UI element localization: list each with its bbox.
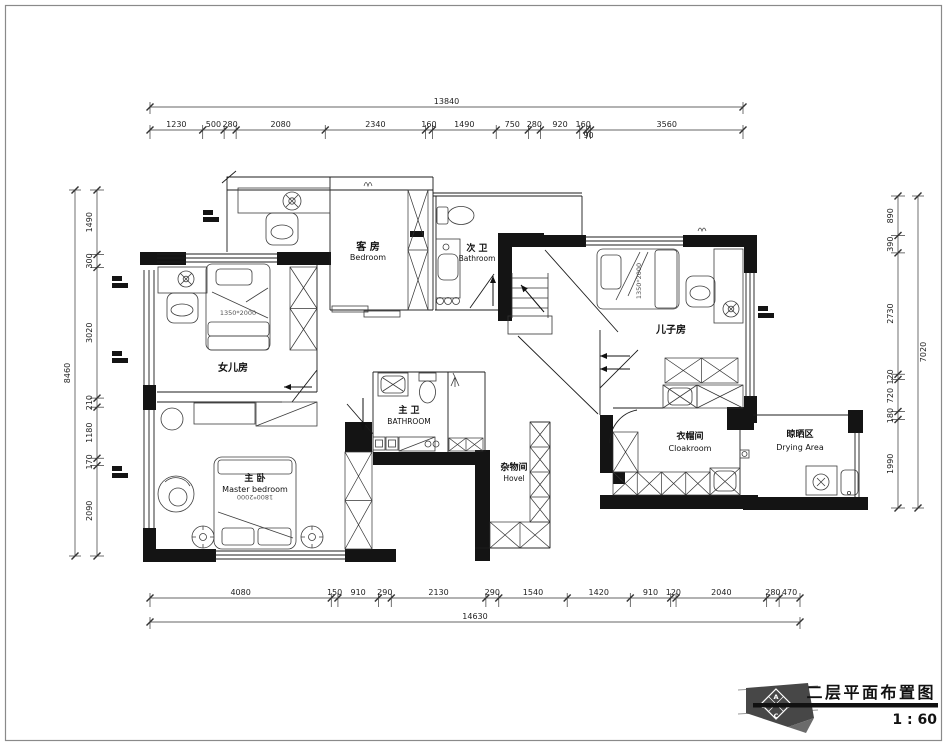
dim-label: 1490 — [85, 212, 94, 232]
room-label-daughter: 女儿房 — [218, 361, 248, 374]
washing-machine-icon — [806, 466, 837, 495]
dim-label: 390 — [886, 237, 895, 252]
door-arrow-icon — [284, 384, 312, 390]
dim-chain-top: 1230500280208023401601490750280920160903… — [147, 97, 747, 140]
dim-label: 14630 — [462, 612, 487, 621]
sliding-door-icon — [332, 306, 400, 317]
sink-icon — [710, 468, 740, 495]
chair-icon — [167, 293, 198, 323]
dim-label: 120 — [886, 369, 895, 384]
speaker-icon — [192, 526, 214, 548]
room-sublabel-drying: Drying Area — [776, 443, 824, 452]
dim-label: 910 — [351, 588, 366, 597]
sink-icon — [378, 373, 408, 396]
door-arrow-icon — [600, 366, 630, 372]
dim-label: 290 — [377, 588, 392, 597]
hatch-cabinet — [665, 358, 738, 383]
dim-label: 2340 — [365, 120, 385, 129]
dim-label: 890 — [886, 208, 895, 223]
door-stop-icon — [740, 450, 749, 458]
title-block: A D B C 二层平面布置图 1 : 60 — [738, 683, 938, 733]
dim-label: 3020 — [85, 323, 94, 343]
room-label-guest: 客 房 — [355, 240, 379, 253]
bed-icon — [206, 264, 270, 350]
shower-icon — [451, 373, 459, 387]
door-arrows — [284, 276, 630, 430]
dim-label: 290 — [485, 588, 500, 597]
toilet-icon — [419, 373, 436, 403]
vent-symbol — [364, 183, 372, 187]
dim-label: 1540 — [523, 588, 543, 597]
logo-letter-top: A — [773, 693, 778, 701]
hatch-cabinet — [290, 267, 317, 350]
dim-label: 150 — [327, 588, 342, 597]
dim-label: 2730 — [886, 303, 895, 323]
hatch-cabinet — [408, 190, 428, 310]
room-label-son: 儿子房 — [655, 323, 686, 336]
desk-icon — [158, 267, 207, 293]
room-sublabel-second-bath: Bathroom — [459, 254, 496, 263]
desk-icon — [238, 188, 330, 213]
dim-label: 7020 — [919, 342, 928, 362]
room-label-second-bath: 次 卫 — [466, 242, 487, 254]
room-label-hovel: 杂物间 — [500, 461, 527, 473]
room-sublabel-cloakroom: Cloakroom — [669, 444, 712, 453]
washer-box-icon — [373, 437, 398, 450]
speaker-icon — [301, 526, 323, 548]
dim-label: 2130 — [428, 588, 448, 597]
armchair-icon — [158, 476, 194, 512]
dim-label: 910 — [643, 588, 658, 597]
dim-label: 2040 — [711, 588, 731, 597]
title-underline — [753, 703, 938, 708]
floor-plan-drawing: 1230500280208023401601490750280920160903… — [0, 0, 947, 746]
hatch-cabinet — [613, 432, 638, 472]
door-arrow-icon — [490, 276, 496, 306]
chair-icon — [266, 213, 298, 245]
dim-label: 90 — [583, 131, 593, 140]
dim-label: 170 — [85, 454, 94, 469]
structural-walls — [140, 233, 868, 562]
bed-size-label: 1350*2000 — [220, 309, 256, 317]
room-sublabel-master: Master bedroom — [222, 485, 288, 494]
hatch-cabinet — [490, 522, 550, 548]
door-arrow-icon — [600, 353, 630, 359]
dim-label: 280 — [527, 120, 542, 129]
dim-label: 720 — [886, 388, 895, 403]
dim-chain-left: 14903003020210118017020908460 — [63, 187, 104, 560]
ceiling-fan-icon — [283, 192, 301, 210]
hatch-cabinet — [449, 438, 483, 451]
bed-size-label: 1350*2000 — [635, 263, 643, 299]
drawing-title: 二层平面布置图 — [806, 683, 936, 702]
sink-icon — [663, 385, 697, 408]
dim-label: 1420 — [589, 588, 609, 597]
vent-symbol — [698, 228, 706, 231]
side-table-icon — [161, 402, 317, 430]
ceiling-fan-icon — [178, 271, 194, 287]
dim-label: 3560 — [657, 120, 677, 129]
hatch-cabinet — [345, 452, 372, 549]
dim-label: 2080 — [271, 120, 291, 129]
dim-label: 160 — [421, 120, 436, 129]
dim-label: 280 — [765, 588, 780, 597]
ceiling-fan-icon — [723, 301, 739, 317]
bathtub-icon — [399, 437, 439, 451]
scale-label: 1 : 60 — [892, 712, 937, 728]
drawing-sheet: 1230500280208023401601490750280920160903… — [0, 0, 947, 746]
dim-label: 1490 — [454, 120, 474, 129]
bed-icon — [214, 457, 296, 549]
room-label-master: 主 卧 — [244, 472, 265, 484]
hatch-cabinet — [613, 472, 710, 495]
drain-icon — [437, 298, 460, 305]
dim-label: 470 — [782, 588, 797, 597]
dim-label: 300 — [85, 253, 94, 268]
dim-chain-right: 890390273012072018019907020 — [886, 193, 928, 512]
dim-label: 1230 — [166, 120, 186, 129]
dim-label: 180 — [886, 408, 895, 423]
stairs-icon — [508, 273, 552, 334]
room-sublabel-master-bath: BATHROOM — [387, 417, 430, 426]
room-label-drying: 晾晒区 — [786, 428, 813, 440]
sheet-border — [6, 6, 942, 741]
room-sublabel-hovel: Hovel — [503, 474, 524, 483]
dim-label: 1180 — [85, 423, 94, 443]
dim-label: 13840 — [434, 97, 459, 106]
logo-letter-bottom: C — [774, 712, 779, 720]
chair-icon — [686, 276, 715, 307]
dim-label: 920 — [552, 120, 567, 129]
room-label-master-bath: 主 卫 — [398, 404, 419, 416]
dim-chain-bottom: 4080150910290213029015401420910120204028… — [147, 588, 804, 629]
dim-label: 4080 — [230, 588, 250, 597]
dim-label: 160 — [576, 120, 591, 129]
room-label-cloakroom: 衣帽间 — [676, 430, 703, 442]
dim-label: 2090 — [85, 501, 94, 521]
dim-label: 210 — [85, 395, 94, 410]
dim-label: 1990 — [886, 454, 895, 474]
bed-size-label: 1800*2000 — [237, 493, 273, 501]
dim-label: 750 — [505, 120, 520, 129]
dim-label: 500 — [206, 120, 221, 129]
sink-icon — [436, 239, 460, 298]
dim-label: 280 — [222, 120, 237, 129]
toilet-icon — [437, 207, 474, 225]
dim-label: 120 — [666, 588, 681, 597]
room-sublabel-guest: Bedroom — [350, 253, 386, 262]
hatch-cabinet — [697, 385, 743, 408]
hatch-cabinet — [530, 422, 550, 522]
dim-label: 8460 — [63, 363, 72, 383]
